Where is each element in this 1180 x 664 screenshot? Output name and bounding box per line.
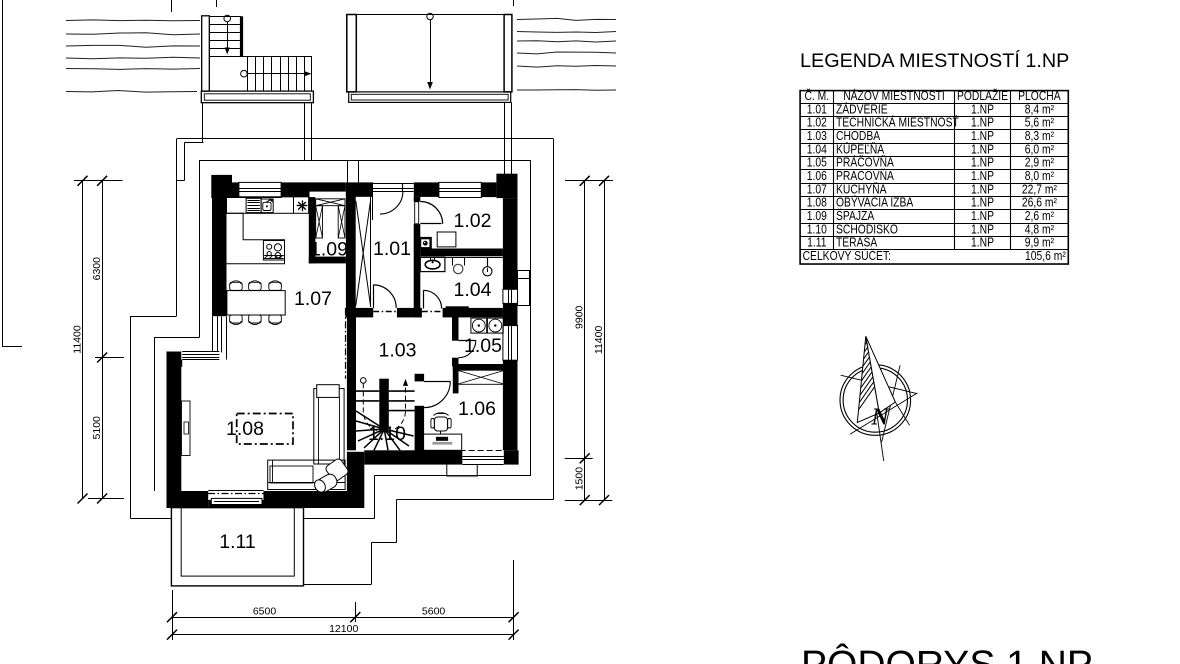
svg-text:CHODBA: CHODBA — [836, 130, 880, 143]
svg-text:1.03: 1.03 — [807, 130, 827, 143]
svg-text:12100: 12100 — [329, 623, 358, 635]
svg-text:1.NP: 1.NP — [971, 210, 994, 223]
svg-text:1.NP: 1.NP — [971, 130, 994, 143]
svg-text:1.NP: 1.NP — [971, 117, 994, 130]
svg-text:11400: 11400 — [71, 325, 83, 354]
svg-text:1.01: 1.01 — [807, 103, 827, 116]
svg-text:Č. M.: Č. M. — [804, 89, 829, 103]
svg-text:1.11: 1.11 — [807, 237, 826, 250]
svg-text:1.04: 1.04 — [454, 279, 492, 301]
svg-text:ŠPAJZA: ŠPAJZA — [836, 209, 875, 223]
svg-text:5600: 5600 — [422, 606, 446, 618]
svg-text:1.08: 1.08 — [226, 418, 264, 440]
svg-text:11400: 11400 — [593, 326, 605, 355]
svg-text:1.NP: 1.NP — [971, 237, 994, 250]
svg-text:1.NP: 1.NP — [971, 183, 994, 196]
svg-text:OBÝVACIA IZBA: OBÝVACIA IZBA — [836, 196, 914, 210]
svg-text:1.02: 1.02 — [454, 210, 492, 232]
svg-text:PLOCHA: PLOCHA — [1018, 90, 1061, 103]
svg-text:4,8 m²: 4,8 m² — [1025, 223, 1054, 236]
svg-text:8,4 m²: 8,4 m² — [1025, 103, 1054, 116]
svg-text:PÔDORYS 1.NP: PÔDORYS 1.NP — [801, 643, 1093, 664]
svg-text:1.07: 1.07 — [807, 183, 827, 196]
svg-text:ZÁDVERIE: ZÁDVERIE — [836, 102, 888, 116]
svg-text:1.03: 1.03 — [379, 340, 417, 362]
svg-text:22,7 m²: 22,7 m² — [1022, 183, 1057, 196]
svg-text:8,3 m²: 8,3 m² — [1025, 130, 1054, 143]
svg-text:1.05: 1.05 — [807, 157, 827, 170]
svg-text:LEGENDA MIESTNOSTÍ 1.NP: LEGENDA MIESTNOSTÍ 1.NP — [800, 49, 1069, 72]
svg-text:105,6 m²: 105,6 m² — [1025, 250, 1066, 263]
svg-text:1.NP: 1.NP — [971, 157, 994, 170]
svg-text:8,0 m²: 8,0 m² — [1025, 170, 1054, 183]
svg-text:5100: 5100 — [91, 416, 103, 440]
svg-text:9,9 m²: 9,9 m² — [1025, 237, 1054, 250]
svg-text:2,6 m²: 2,6 m² — [1025, 210, 1054, 223]
svg-text:PRÁČOVŇA: PRÁČOVŇA — [836, 156, 894, 170]
svg-text:6300: 6300 — [91, 257, 103, 281]
svg-text:1.NP: 1.NP — [971, 103, 994, 116]
svg-text:KÚPEĽŇA: KÚPEĽŇA — [836, 142, 884, 156]
svg-text:TECHNICKÁ MIESTNOSŤ: TECHNICKÁ MIESTNOSŤ — [836, 116, 959, 130]
svg-text:PRACOVŇA: PRACOVŇA — [836, 169, 894, 183]
svg-text:6,0 m²: 6,0 m² — [1025, 143, 1054, 156]
svg-text:SCHODISKO: SCHODISKO — [836, 223, 898, 236]
svg-text:9900: 9900 — [573, 305, 585, 329]
svg-text:1.02: 1.02 — [807, 117, 827, 130]
svg-text:1.NP: 1.NP — [971, 197, 994, 210]
svg-text:26,6 m²: 26,6 m² — [1022, 197, 1057, 210]
svg-text:KUCHYŇA: KUCHYŇA — [836, 182, 887, 196]
svg-text:1.06: 1.06 — [807, 170, 827, 183]
svg-text:1.07: 1.07 — [294, 288, 332, 310]
svg-text:1.09: 1.09 — [807, 210, 827, 223]
svg-text:TERASA: TERASA — [836, 237, 878, 250]
svg-text:1.08: 1.08 — [807, 197, 827, 210]
svg-text:1500: 1500 — [573, 467, 585, 491]
svg-text:PODLAŽIE: PODLAŽIE — [957, 89, 1008, 103]
svg-text:N: N — [871, 404, 891, 430]
svg-text:1.09: 1.09 — [310, 239, 348, 261]
svg-text:5,6 m²: 5,6 m² — [1025, 117, 1054, 130]
svg-text:6500: 6500 — [253, 606, 277, 618]
svg-text:1.11: 1.11 — [219, 531, 256, 553]
svg-text:1.NP: 1.NP — [971, 143, 994, 156]
svg-text:1.04: 1.04 — [807, 143, 828, 156]
svg-text:1.10: 1.10 — [807, 223, 827, 236]
svg-text:1.01: 1.01 — [373, 238, 411, 260]
svg-text:CELKOVÝ SÚČET:: CELKOVÝ SÚČET: — [803, 249, 891, 263]
svg-text:1.05: 1.05 — [464, 335, 502, 357]
svg-text:1.NP: 1.NP — [971, 223, 994, 236]
svg-text:1.NP: 1.NP — [971, 170, 994, 183]
svg-text:NÁZOV MIESTNOSTI: NÁZOV MIESTNOSTI — [843, 89, 945, 103]
svg-text:1.06: 1.06 — [458, 398, 496, 420]
svg-text:1.10: 1.10 — [368, 423, 406, 445]
svg-text:2,9 m²: 2,9 m² — [1025, 157, 1054, 170]
